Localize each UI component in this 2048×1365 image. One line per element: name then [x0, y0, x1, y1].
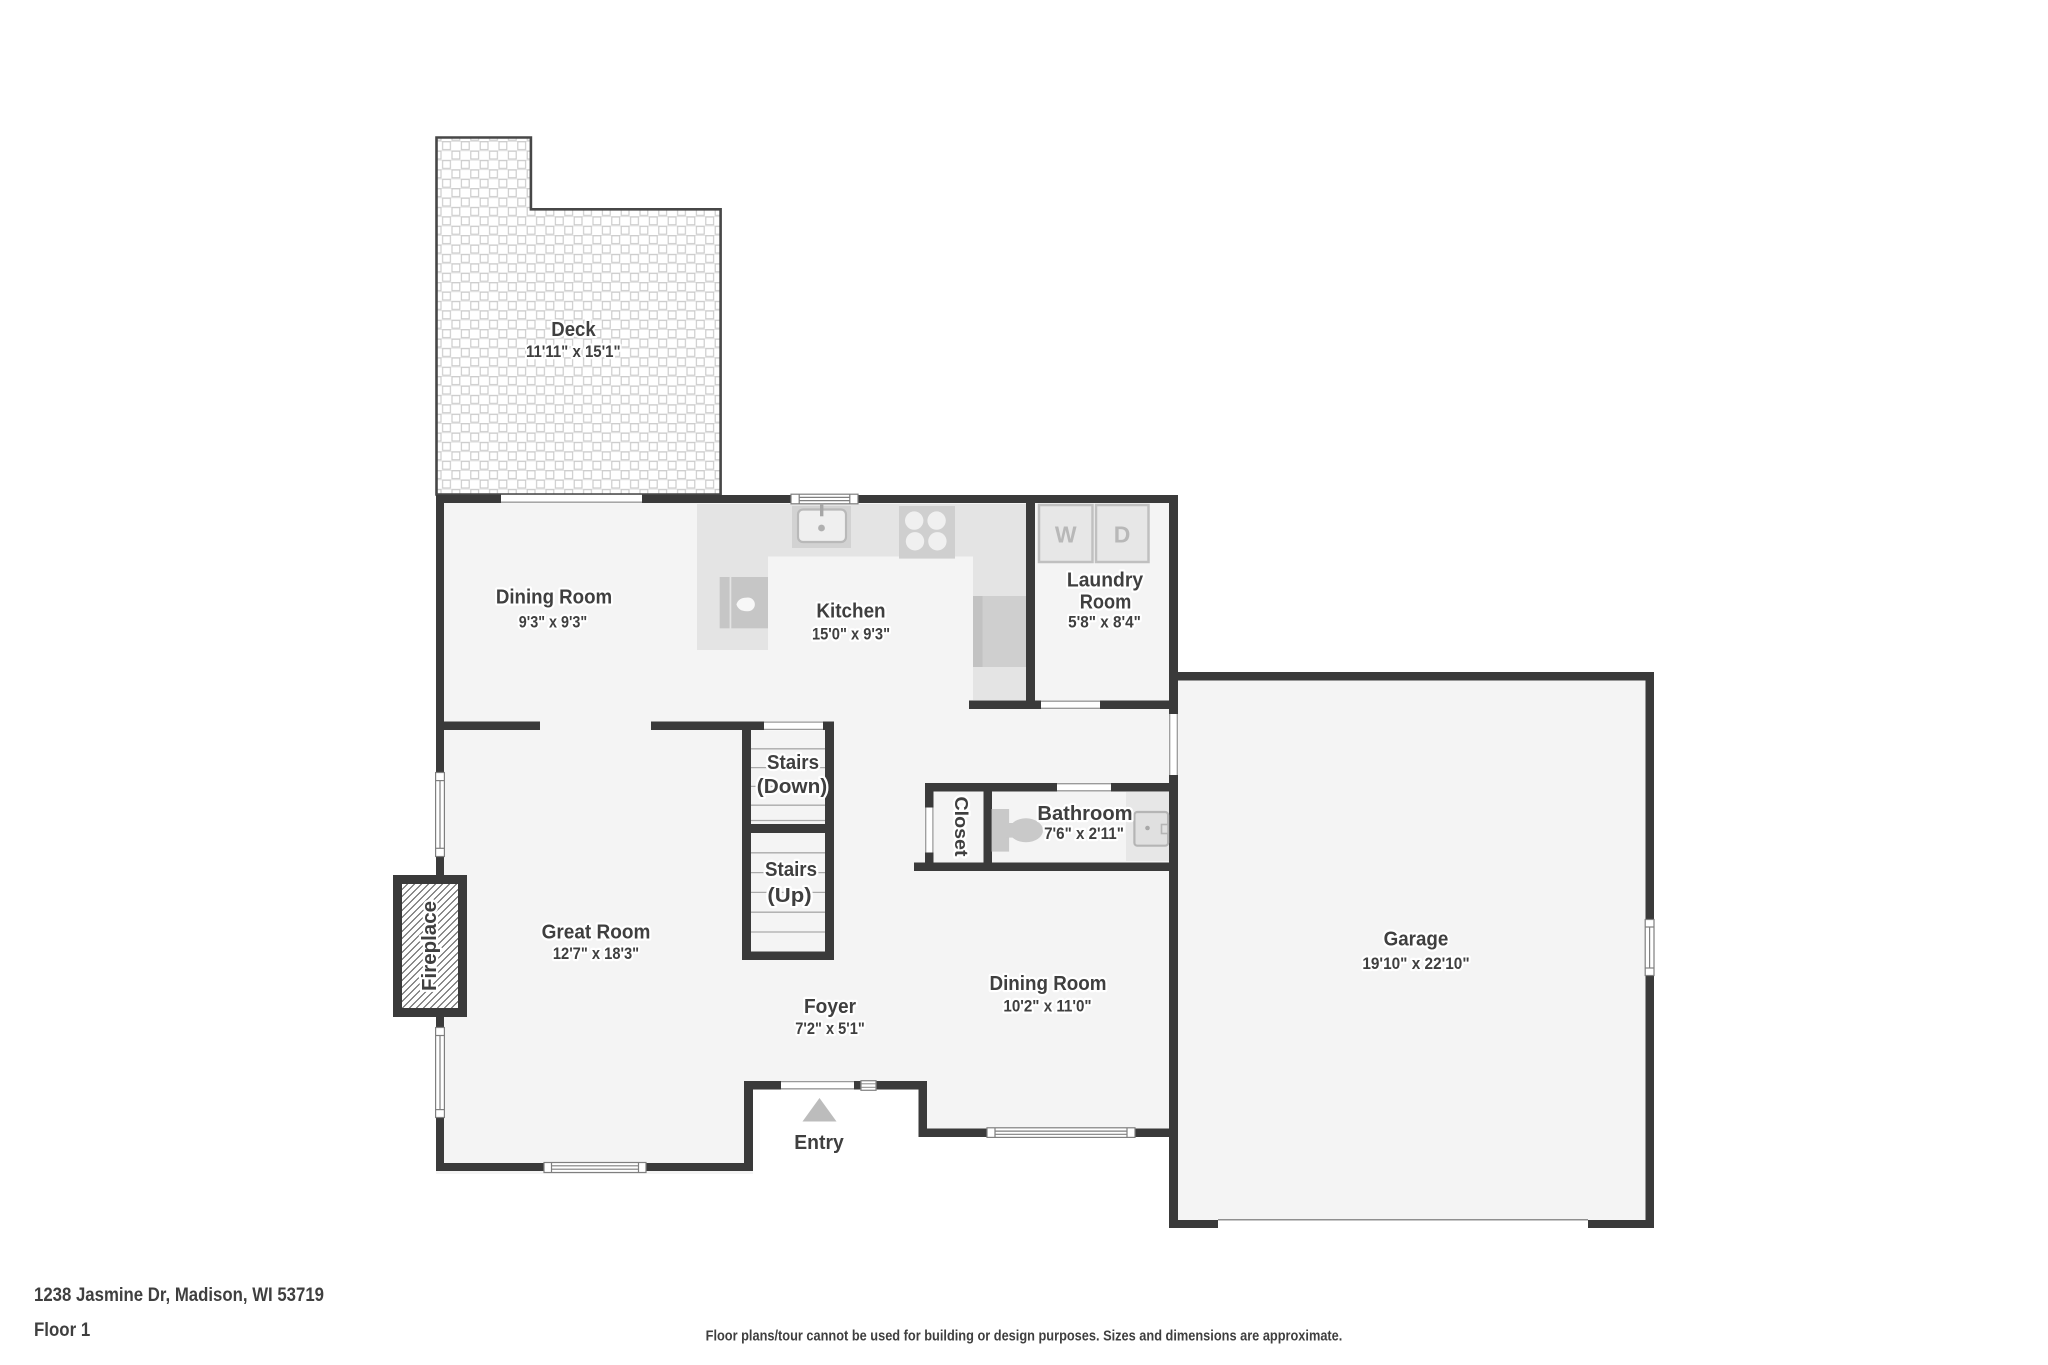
- svg-text:Kitchen: Kitchen: [816, 601, 885, 623]
- svg-text:W: W: [1055, 522, 1077, 548]
- svg-text:Dining Room: Dining Room: [496, 587, 612, 609]
- svg-text:11'11" x 15'1": 11'11" x 15'1": [526, 343, 621, 361]
- svg-text:Great Room: Great Room: [542, 922, 651, 944]
- svg-text:Bathroom: Bathroom: [1037, 803, 1132, 825]
- svg-text:Floor plans/tour cannot be use: Floor plans/tour cannot be used for buil…: [706, 1328, 1343, 1344]
- svg-text:Garage: Garage: [1384, 929, 1449, 951]
- svg-text:7'2" x 5'1": 7'2" x 5'1": [795, 1020, 865, 1038]
- svg-text:7'6" x 2'11": 7'6" x 2'11": [1044, 825, 1124, 843]
- svg-text:Stairs: Stairs: [765, 859, 817, 881]
- svg-text:Fireplace: Fireplace: [419, 901, 441, 991]
- svg-text:(Up): (Up): [767, 885, 811, 907]
- svg-text:Room: Room: [1080, 592, 1132, 614]
- svg-text:(Down): (Down): [757, 776, 827, 798]
- svg-text:15'0" x 9'3": 15'0" x 9'3": [812, 626, 890, 644]
- svg-text:Closet: Closet: [951, 797, 971, 857]
- svg-text:9'3" x 9'3": 9'3" x 9'3": [519, 614, 587, 632]
- svg-text:Deck: Deck: [551, 319, 596, 341]
- svg-text:1238 Jasmine Dr, Madison, WI 5: 1238 Jasmine Dr, Madison, WI 53719: [34, 1285, 324, 1306]
- svg-text:Foyer: Foyer: [804, 996, 856, 1018]
- svg-text:10'2" x 11'0": 10'2" x 11'0": [1003, 998, 1091, 1016]
- svg-text:Floor 1: Floor 1: [34, 1320, 91, 1341]
- svg-text:19'10" x 22'10": 19'10" x 22'10": [1362, 955, 1469, 973]
- svg-text:Dining Room: Dining Room: [990, 973, 1107, 995]
- svg-text:Laundry: Laundry: [1067, 570, 1144, 592]
- svg-text:Stairs: Stairs: [767, 752, 819, 774]
- svg-text:12'7" x 18'3": 12'7" x 18'3": [553, 945, 639, 963]
- svg-text:D: D: [1114, 522, 1131, 548]
- svg-text:Entry: Entry: [794, 1132, 844, 1154]
- svg-text:5'8" x 8'4": 5'8" x 8'4": [1068, 614, 1141, 632]
